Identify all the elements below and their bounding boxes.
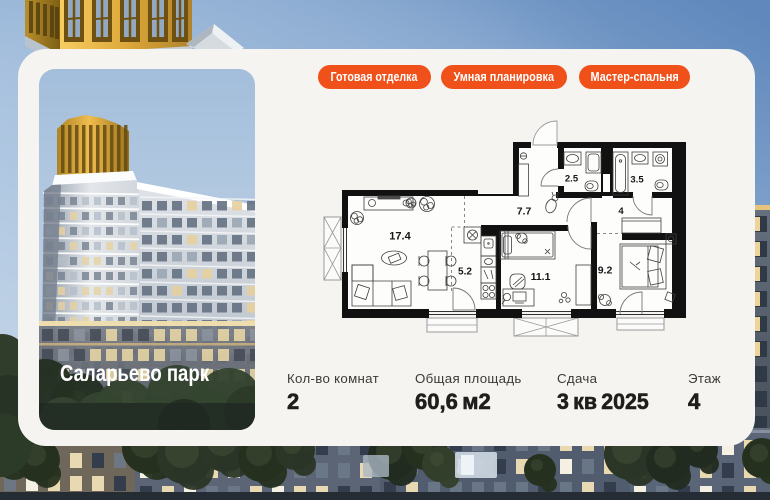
svg-text:3.5: 3.5	[630, 175, 644, 186]
svg-text:7.7: 7.7	[517, 206, 532, 218]
svg-text:17.4: 17.4	[389, 231, 411, 243]
svg-text:2.5: 2.5	[565, 174, 579, 185]
svg-text:5.2: 5.2	[458, 267, 472, 278]
svg-text:4: 4	[618, 206, 624, 217]
svg-text:9.2: 9.2	[598, 265, 613, 277]
svg-text:11.1: 11.1	[531, 271, 551, 283]
